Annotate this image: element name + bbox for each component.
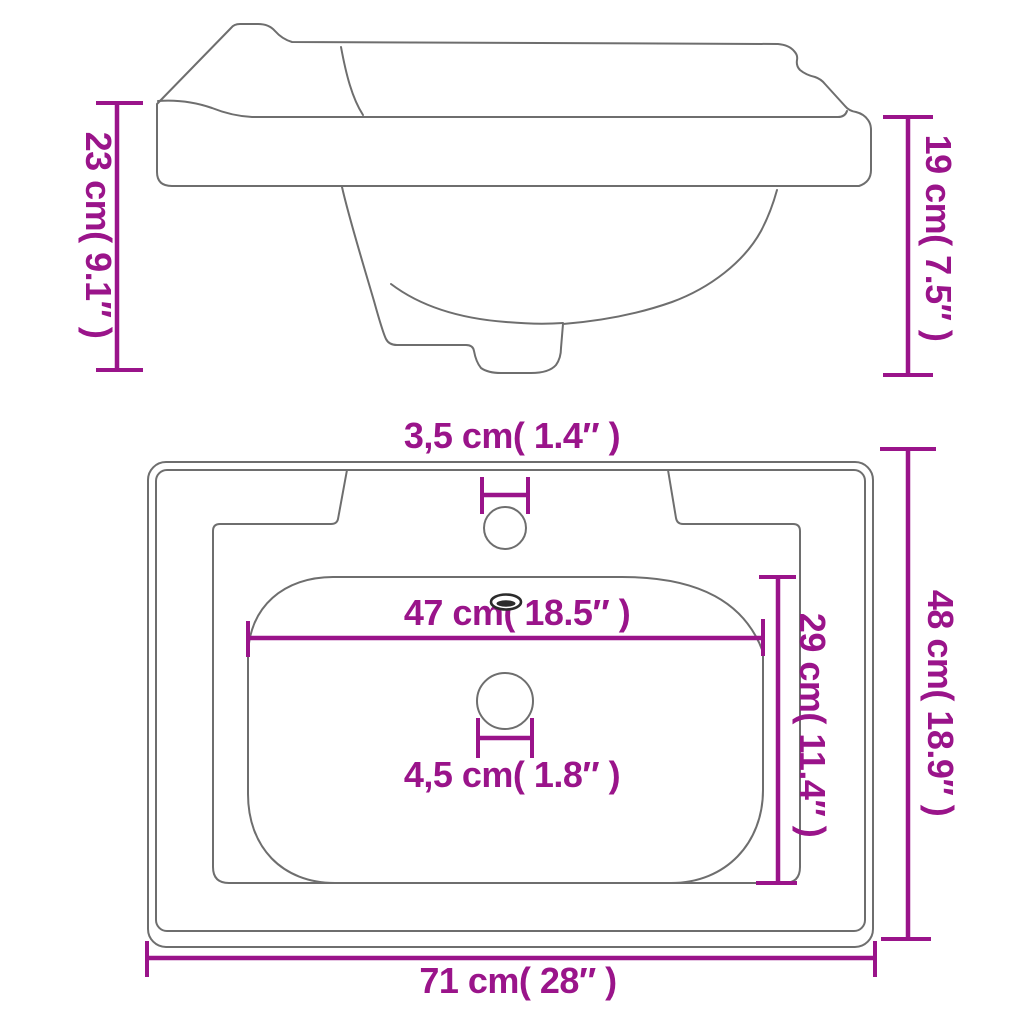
top-view-deck-contour bbox=[213, 470, 800, 883]
top-view-rim-inner-edge bbox=[156, 470, 865, 931]
label-overall-width: 71 cm( 28″ ) bbox=[419, 963, 616, 999]
overflow-hole bbox=[486, 592, 526, 614]
side-view-deck-edge-line bbox=[158, 101, 847, 117]
label-height-left: 23 cm( 9.1″ ) bbox=[80, 132, 116, 339]
side-view-outline bbox=[157, 24, 871, 186]
label-drain-hole-width: 4,5 cm( 1.8″ ) bbox=[404, 757, 620, 793]
label-overall-depth: 48 cm( 18.9″ ) bbox=[922, 590, 958, 816]
drain-hole bbox=[477, 673, 533, 729]
dimension-lines bbox=[96, 103, 936, 977]
label-height-right: 19 cm( 7.5″ ) bbox=[920, 135, 956, 342]
sink-top-view bbox=[148, 462, 873, 947]
side-view-bowl-outline bbox=[342, 187, 777, 373]
top-view-outer-rim bbox=[148, 462, 873, 947]
faucet-hole bbox=[484, 507, 526, 549]
diagram-canvas: 23 cm( 9.1″ ) 19 cm( 7.5″ ) 3,5 cm( 1.4″… bbox=[0, 0, 1024, 1024]
sink-side-view bbox=[157, 24, 871, 373]
label-faucet-hole-width: 3,5 cm( 1.4″ ) bbox=[404, 418, 620, 454]
side-view-bowl-inner-curve bbox=[391, 284, 563, 324]
sink-dimension-drawing bbox=[0, 0, 1024, 1024]
side-view-deck-left-curve bbox=[341, 47, 363, 115]
dim-drain-hole-width bbox=[478, 718, 532, 758]
dim-faucet-hole-width bbox=[482, 477, 528, 514]
label-basin-depth: 29 cm( 11.4″ ) bbox=[794, 613, 830, 837]
